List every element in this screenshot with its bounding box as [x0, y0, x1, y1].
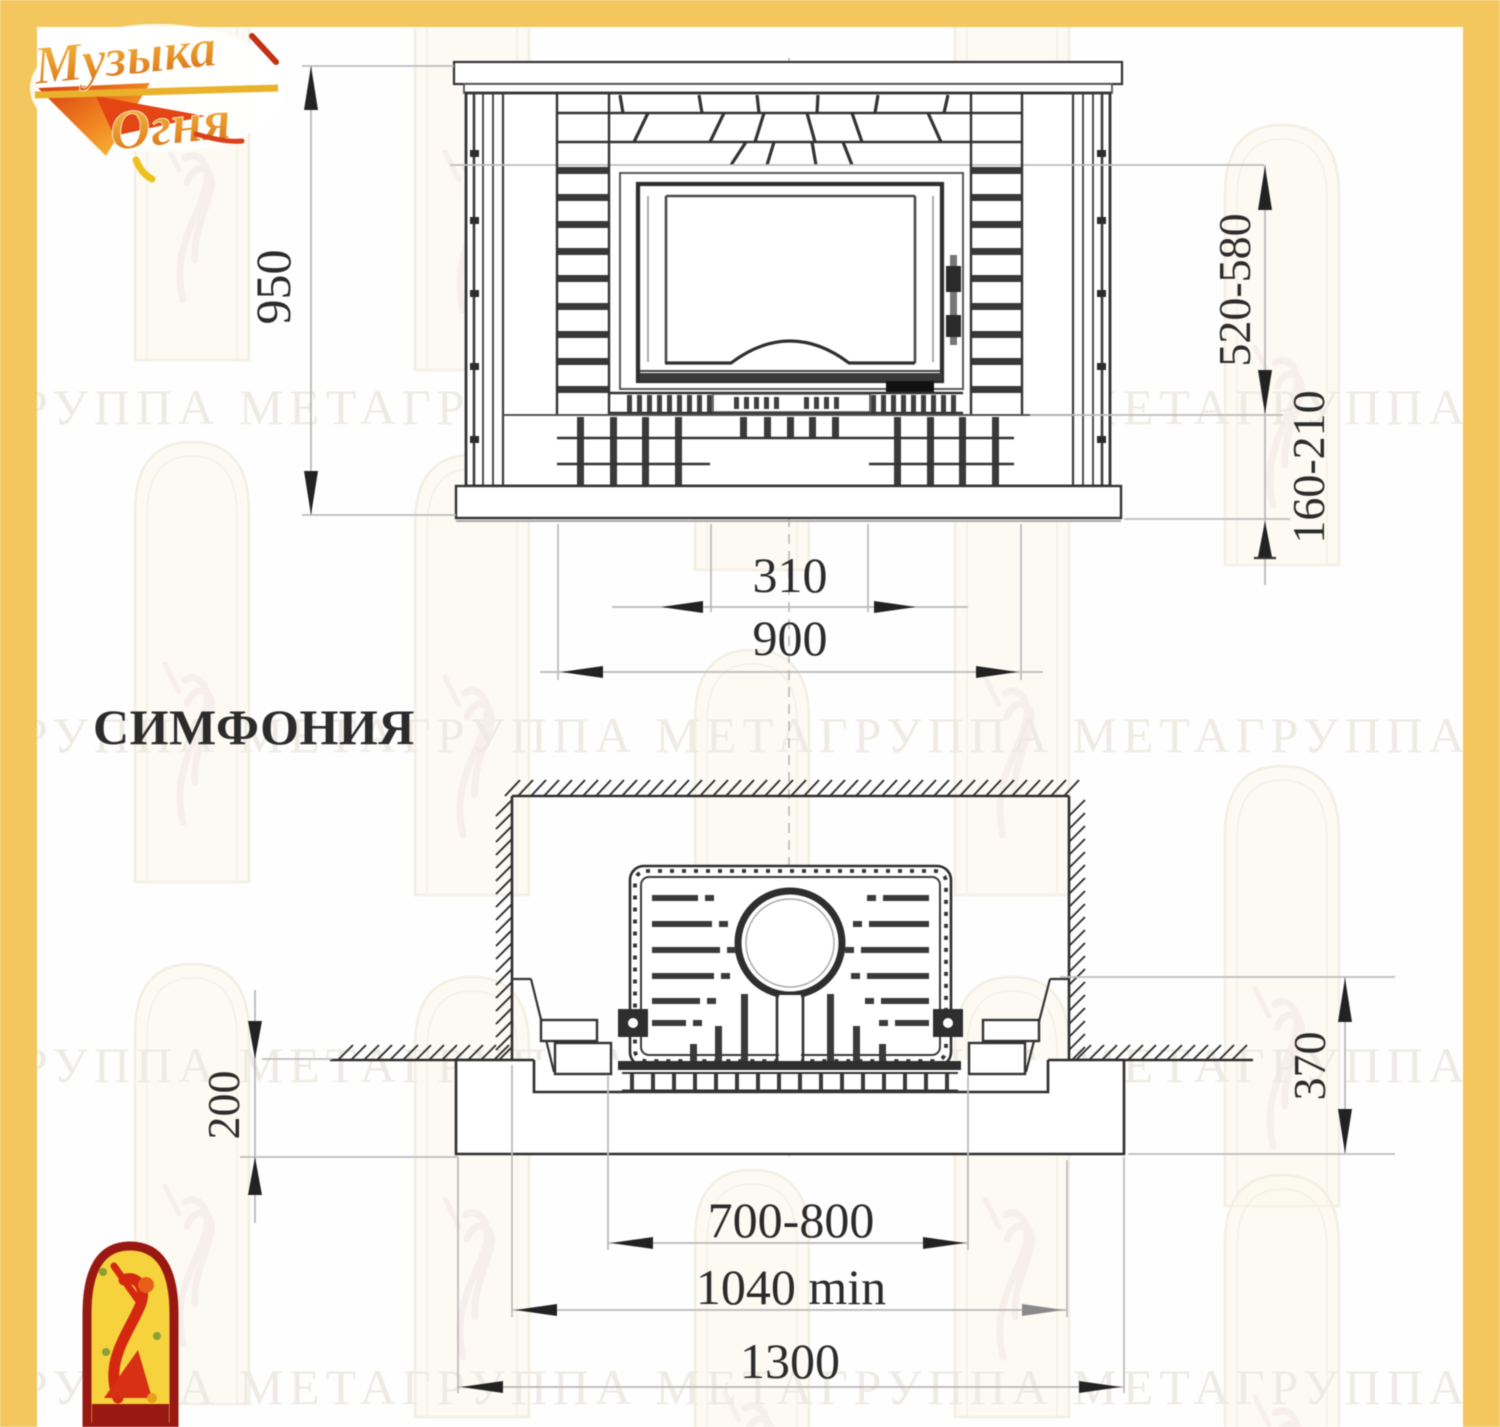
svg-text:1040 min: 1040 min [696, 1259, 886, 1315]
svg-text:160-210: 160-210 [1283, 390, 1334, 543]
svg-text:370: 370 [1284, 1032, 1335, 1101]
svg-text:СИМФОНИЯ: СИМФОНИЯ [93, 699, 415, 755]
svg-text:200: 200 [198, 1071, 249, 1140]
svg-text:700-800: 700-800 [708, 1192, 875, 1248]
svg-text:900: 900 [753, 610, 828, 666]
svg-text:520-580: 520-580 [1209, 213, 1260, 366]
svg-text:1300: 1300 [740, 1333, 840, 1389]
svg-text:950: 950 [245, 250, 301, 325]
svg-text:310: 310 [753, 547, 828, 603]
svg-text:Огня: Огня [107, 89, 234, 163]
